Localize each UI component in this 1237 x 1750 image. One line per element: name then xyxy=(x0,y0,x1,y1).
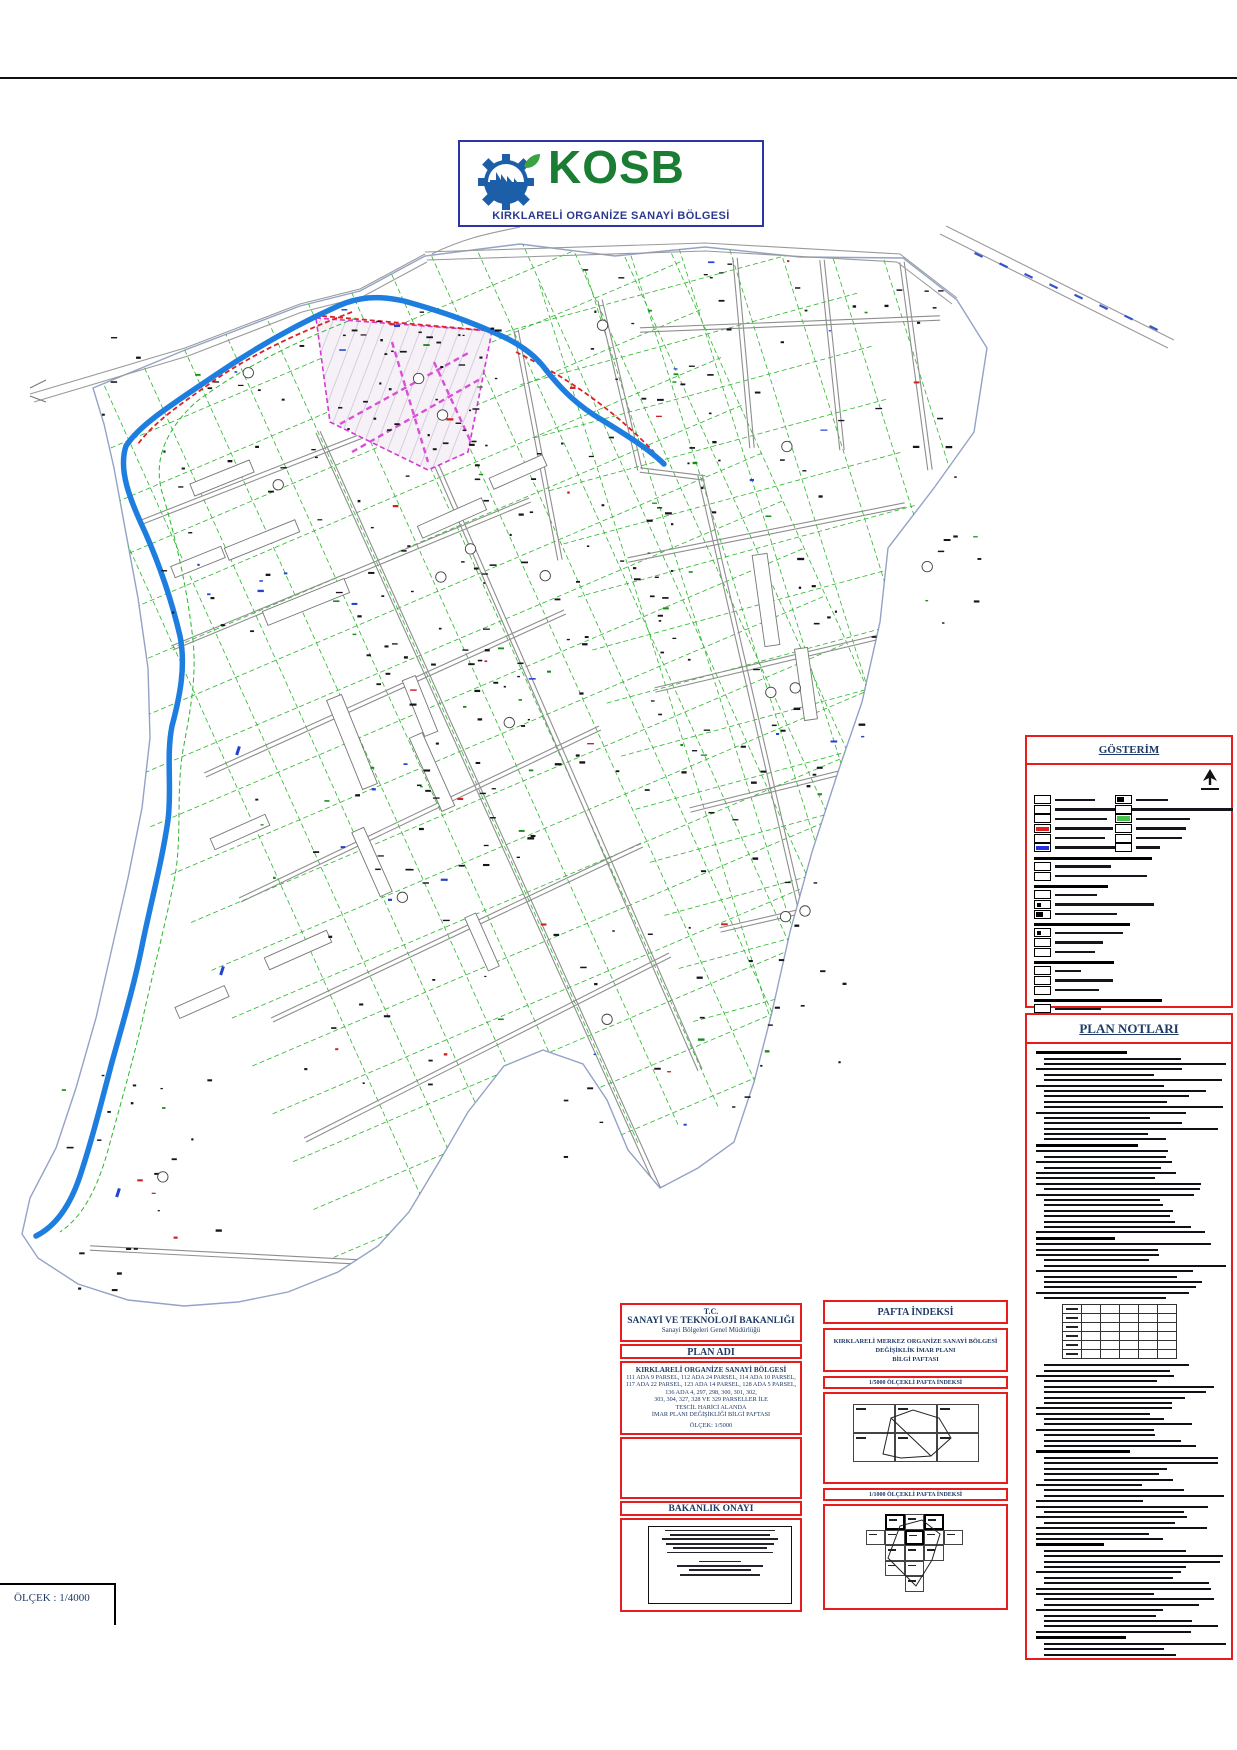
plan-note-line xyxy=(1044,1473,1159,1475)
legend-item-label xyxy=(1055,818,1107,821)
plan-note-line xyxy=(1044,1156,1166,1158)
legend-section-header xyxy=(1034,885,1108,888)
parcel-line: 303, 304, 327, 328 VE 329 PARSELLER İLE xyxy=(622,1396,800,1403)
plan-note-line xyxy=(1044,1188,1200,1190)
plan-note-line xyxy=(1044,1167,1161,1169)
plan-note-line xyxy=(1036,1161,1172,1163)
kosb-logo: KOSB KIRKLARELİ ORGANİZE SANAYİ BÖLGESİ xyxy=(458,140,764,227)
plan-note-line xyxy=(1036,1450,1130,1453)
plan-sheet: { "page": { "scale_label": "ÖLÇEK : 1/40… xyxy=(0,0,1237,1750)
plan-note-line xyxy=(1044,1423,1192,1425)
north-arrow-icon xyxy=(1195,767,1225,793)
plan-note-line xyxy=(1036,1429,1154,1431)
plan-note-line xyxy=(1044,1101,1167,1103)
plan-note-line xyxy=(1044,1418,1164,1420)
approval-text-line xyxy=(673,1547,767,1549)
index-desc-line: KIRKLARELİ MERKEZ ORGANİZE SANAYİ BÖLGES… xyxy=(825,1337,1006,1346)
approval-text-line xyxy=(665,1530,776,1532)
legend-swatch-white xyxy=(1034,795,1051,804)
plan-note-line xyxy=(1036,1249,1158,1251)
plan-note-line xyxy=(1044,1468,1167,1470)
legend-item-label xyxy=(1055,913,1117,916)
approval-text-line xyxy=(699,1561,742,1563)
index-5000-grid-cells xyxy=(853,1404,979,1462)
approval-text-line xyxy=(662,1538,778,1540)
legend-item xyxy=(1034,890,1154,900)
legend-swatch-white xyxy=(1034,890,1051,899)
plan-note-line xyxy=(1044,1281,1202,1283)
legend-section-header xyxy=(1034,923,1130,926)
plan-note-line xyxy=(1036,1231,1205,1233)
legend-swatch-white xyxy=(1115,805,1132,814)
plan-note-line xyxy=(1044,1577,1173,1579)
legend-item-label xyxy=(1055,903,1154,906)
plan-note-line xyxy=(1036,1172,1176,1174)
legend-item-label xyxy=(1055,875,1147,878)
legend-item-label xyxy=(1055,846,1121,849)
parcel-line: 117 ADA 22 PARSEL, 123 ADA 14 PARSEL, 12… xyxy=(622,1381,800,1388)
index-5000-label: 1/5000 ÖLÇEKLİ PAFTA İNDEKSİ xyxy=(823,1376,1008,1389)
plan-note-line xyxy=(1036,1484,1142,1486)
legend-item xyxy=(1034,966,1154,976)
ministry-approval-block xyxy=(620,1518,802,1612)
index-1000-grid-cells xyxy=(866,1514,966,1596)
sheet-top-rule xyxy=(0,77,1237,79)
ministry-name: SANAYİ VE TEKNOLOJİ BAKANLIĞI xyxy=(622,1316,800,1326)
legend-section-header xyxy=(1034,999,1162,1002)
plan-note-line xyxy=(1044,1117,1150,1119)
legend-item-label xyxy=(1055,970,1081,973)
empty-approval-box xyxy=(620,1437,802,1499)
legend-item-label xyxy=(1055,799,1095,802)
plan-note-line xyxy=(1044,1550,1186,1552)
plan-note-line xyxy=(1044,1095,1189,1097)
plan-scale-line: ÖLÇEK: 1/5000 xyxy=(622,1422,800,1429)
scale-label: ÖLÇEK : 1/4000 xyxy=(14,1592,114,1604)
plan-note-line xyxy=(1036,1593,1154,1595)
legend-swatch-half xyxy=(1034,910,1051,919)
legend-item xyxy=(1034,976,1154,986)
legend-item-label xyxy=(1055,932,1123,935)
legend-item-label xyxy=(1055,989,1099,992)
legend-item xyxy=(1115,824,1233,834)
legend-swatch-white xyxy=(1034,834,1051,843)
legend-swatch-red xyxy=(1034,824,1051,833)
legend-item-label xyxy=(1055,941,1103,944)
plan-note-line xyxy=(1044,1276,1177,1278)
plan-note-line xyxy=(1044,1122,1182,1124)
plan-note-line xyxy=(1044,1106,1223,1108)
plan-note-line xyxy=(1036,1500,1143,1502)
approval-text-line xyxy=(689,1569,751,1571)
legend-item-label xyxy=(1055,865,1111,868)
approval-stamp-box xyxy=(648,1526,792,1604)
plan-note-line xyxy=(1044,1440,1181,1442)
legend-item xyxy=(1034,871,1154,881)
approval-text-line xyxy=(677,1565,762,1567)
parcel-line: 136 ADA 4, 297, 298, 300, 301, 302, xyxy=(622,1389,800,1396)
plan-note-line xyxy=(1044,1479,1173,1481)
scale-corner-box: ÖLÇEK : 1/4000 xyxy=(0,1583,116,1625)
plan-note-line xyxy=(1044,1386,1214,1388)
legend-item-label xyxy=(1055,837,1105,840)
plan-note-line xyxy=(1044,1391,1206,1393)
index-desc-line: BİLGİ PAFTASI xyxy=(825,1355,1006,1364)
legend-swatch-white xyxy=(1034,948,1051,957)
plan-note-line xyxy=(1044,1199,1160,1201)
legend-item xyxy=(1115,843,1233,853)
plan-note-line xyxy=(1044,1604,1199,1606)
legend-swatch-green xyxy=(1115,814,1132,823)
legend-item-label xyxy=(1055,951,1095,954)
legend-item-label xyxy=(1055,827,1113,830)
plan-note-line xyxy=(1036,1068,1182,1070)
parcel-line: İMAR PLANI DEĞİŞİKLİĞİ BİLGİ PAFTASI xyxy=(622,1411,800,1418)
plan-notes-title: PLAN NOTLARI xyxy=(1027,1015,1231,1044)
plan-name-subtitle: KIRKLARELİ ORGANİZE SANAYİ BÖLGESİ xyxy=(622,1366,800,1374)
plan-note-line xyxy=(1036,1270,1193,1272)
legend-section-header xyxy=(1034,857,1152,860)
plan-note-line xyxy=(1036,1543,1104,1546)
ministry-block: T.C. SANAYİ VE TEKNOLOJİ BAKANLIĞI Sanay… xyxy=(620,1303,802,1342)
index-desc-line: DEĞİŞİKLİK İMAR PLANI xyxy=(825,1346,1006,1355)
legend-item-label xyxy=(1136,799,1168,802)
plan-note-line xyxy=(1036,1407,1172,1409)
legend-body xyxy=(1027,765,1231,1004)
plan-note-line xyxy=(1044,1210,1173,1212)
plan-name-block: KIRKLARELİ ORGANİZE SANAYİ BÖLGESİ 111 A… xyxy=(620,1361,802,1435)
plan-note-line xyxy=(1044,1620,1192,1622)
plan-note-line xyxy=(1036,1112,1186,1114)
legend-swatch-dot xyxy=(1034,900,1051,909)
plan-note-line xyxy=(1044,1434,1155,1436)
legend-swatch-white xyxy=(1034,966,1051,975)
legend-item xyxy=(1034,985,1154,995)
ministry-approval-title: BAKANLIK ONAYI xyxy=(620,1501,802,1516)
legend-title: GÖSTERİM xyxy=(1027,737,1231,765)
plan-note-line xyxy=(1036,1588,1211,1590)
plan-note-line xyxy=(1044,1615,1156,1617)
legend-swatch-half xyxy=(1115,795,1132,804)
legend-item-label xyxy=(1055,1008,1101,1011)
approval-text-line xyxy=(670,1534,769,1536)
plan-note-line xyxy=(1036,1516,1187,1518)
plan-notes-body xyxy=(1027,1044,1231,1656)
plan-notes-table xyxy=(1062,1304,1177,1359)
plan-note-line xyxy=(1044,1598,1214,1600)
legend-item xyxy=(1034,862,1154,872)
legend-swatch-white xyxy=(1034,938,1051,947)
plan-note-line xyxy=(1036,1237,1115,1240)
plan-note-line xyxy=(1036,1150,1168,1152)
plan-note-line xyxy=(1044,1221,1175,1223)
plan-note-line xyxy=(1044,1074,1154,1076)
tc-line: T.C. xyxy=(622,1307,800,1316)
legend-swatch-white xyxy=(1034,872,1051,881)
plan-note-line xyxy=(1036,1292,1189,1294)
legend-item xyxy=(1034,900,1154,910)
plan-note-line xyxy=(1036,1609,1163,1611)
plan-note-line xyxy=(1036,1636,1126,1639)
legend-item xyxy=(1034,938,1154,948)
legend-item xyxy=(1115,833,1233,843)
plan-note-line xyxy=(1044,1090,1206,1092)
plan-note-line xyxy=(1044,1495,1224,1497)
plan-note-line xyxy=(1036,1254,1159,1256)
plan-note-line xyxy=(1044,1370,1170,1372)
plan-note-line xyxy=(1044,1648,1164,1650)
legend-swatch-white xyxy=(1034,1004,1051,1013)
legend-item-label xyxy=(1055,894,1097,897)
legend-section-header xyxy=(1034,961,1114,964)
legend-swatch-white xyxy=(1034,976,1051,985)
plan-note-line xyxy=(1044,1259,1149,1261)
approval-text-line xyxy=(666,1543,774,1545)
plan-notes-panel: PLAN NOTLARI xyxy=(1025,1013,1233,1660)
plan-note-line xyxy=(1044,1522,1175,1524)
plan-note-line xyxy=(1044,1457,1218,1459)
approval-text-line xyxy=(680,1574,760,1576)
plan-note-line xyxy=(1044,1489,1184,1491)
gear-factory-icon xyxy=(474,150,544,210)
plan-note-line xyxy=(1044,1215,1170,1217)
legend-item-label xyxy=(1136,827,1186,830)
plan-note-line xyxy=(1036,1538,1163,1540)
plan-note-line xyxy=(1036,1085,1164,1087)
index-5000-grid xyxy=(823,1392,1008,1484)
legend-item xyxy=(1115,814,1233,824)
legend-column-2 xyxy=(1115,795,1233,853)
plan-note-line xyxy=(1044,1286,1196,1288)
plan-note-line xyxy=(1044,1643,1226,1645)
legend-panel: GÖSTERİM xyxy=(1025,735,1233,1008)
legend-item xyxy=(1115,795,1233,805)
plan-note-line xyxy=(1036,1527,1207,1529)
plan-name-title: PLAN ADI xyxy=(620,1344,802,1359)
plan-note-line xyxy=(1044,1138,1166,1140)
legend-swatch-white xyxy=(1034,986,1051,995)
plan-note-line xyxy=(1036,1375,1174,1377)
plan-note-line xyxy=(1036,1533,1149,1535)
plan-note-line xyxy=(1036,1571,1181,1573)
plan-note-line xyxy=(1036,1144,1138,1147)
plan-note-line xyxy=(1036,1506,1208,1508)
plan-note-line xyxy=(1044,1079,1222,1081)
legend-swatch-white xyxy=(1115,824,1132,833)
plan-note-line xyxy=(1044,1128,1218,1130)
site-outline-overlay xyxy=(866,1514,966,1596)
plan-note-line xyxy=(1036,1051,1127,1054)
plan-note-line xyxy=(1044,1058,1181,1060)
plan-note-line xyxy=(1044,1226,1191,1228)
plan-note-line xyxy=(1044,1445,1196,1447)
legend-item-label xyxy=(1055,979,1113,982)
legend-swatch-white xyxy=(1034,862,1051,871)
plan-note-line xyxy=(1044,1654,1176,1656)
legend-item-label xyxy=(1136,818,1190,821)
plan-note-line xyxy=(1044,1204,1163,1206)
legend-swatch-blue xyxy=(1034,843,1051,852)
legend-swatch-white xyxy=(1115,834,1132,843)
plan-note-line xyxy=(1044,1462,1218,1464)
plan-note-line xyxy=(1044,1555,1223,1557)
logo-title: KOSB xyxy=(548,140,685,194)
approval-text-line xyxy=(667,1552,772,1554)
plan-note-line xyxy=(1044,1566,1186,1568)
legend-item-label xyxy=(1136,846,1160,849)
plan-note-line xyxy=(1036,1243,1211,1245)
plan-note-line xyxy=(1044,1265,1226,1267)
legend-item xyxy=(1034,947,1154,957)
plan-note-line xyxy=(1036,1194,1194,1196)
index-1000-label: 1/1000 ÖLÇEKLİ PAFTA İNDEKSİ xyxy=(823,1488,1008,1501)
logo-subtitle: KIRKLARELİ ORGANİZE SANAYİ BÖLGESİ xyxy=(460,210,762,222)
plan-note-line xyxy=(1044,1063,1226,1065)
plan-note-line xyxy=(1044,1511,1184,1513)
legend-item xyxy=(1034,928,1154,938)
legend-item-label xyxy=(1136,837,1182,840)
plan-note-line xyxy=(1044,1133,1148,1135)
site-outline-overlay xyxy=(853,1404,979,1462)
plan-note-line xyxy=(1044,1625,1218,1627)
legend-swatch-white xyxy=(1034,805,1051,814)
plan-note-line xyxy=(1044,1582,1209,1584)
legend-item xyxy=(1115,805,1233,815)
legend-item xyxy=(1034,909,1154,919)
plan-note-line xyxy=(1044,1297,1166,1299)
plan-note-line xyxy=(1044,1402,1172,1404)
legend-item-label xyxy=(1136,808,1233,811)
sheet-index-title: PAFTA İNDEKSİ xyxy=(823,1300,1008,1324)
sheet-index-description: KIRKLARELİ MERKEZ ORGANİZE SANAYİ BÖLGES… xyxy=(823,1328,1008,1372)
parcel-line: TESCİL HARİCİ ALANDA xyxy=(622,1404,800,1411)
plan-note-line xyxy=(1036,1177,1155,1179)
plan-note-line xyxy=(1044,1364,1189,1366)
plan-note-line xyxy=(1044,1561,1220,1563)
plan-note-line xyxy=(1044,1397,1185,1399)
plan-note-line xyxy=(1036,1413,1150,1415)
highway-label-marks xyxy=(974,252,1158,331)
legend-swatch-white xyxy=(1115,843,1132,852)
plan-note-line xyxy=(1044,1380,1157,1382)
directorate-name: Sanayi Bölgeleri Genel Müdürlüğü xyxy=(622,1326,800,1334)
parcel-line: 111 ADA 9 PARSEL, 112 ADA 24 PARSEL, 114… xyxy=(622,1374,800,1381)
plan-note-line xyxy=(1036,1631,1191,1633)
legend-swatch-white xyxy=(1034,814,1051,823)
index-1000-grid xyxy=(823,1504,1008,1610)
plan-note-line xyxy=(1036,1183,1201,1185)
legend-swatch-dot xyxy=(1034,928,1051,937)
